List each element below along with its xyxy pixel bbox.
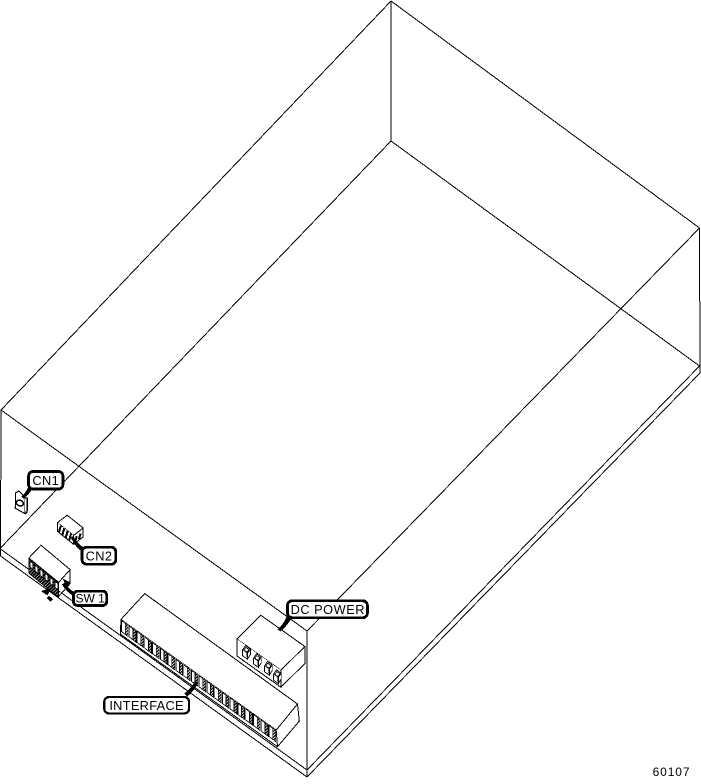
svg-text:INTERFACE: INTERFACE [109, 698, 184, 713]
svg-text:60107: 60107 [653, 765, 691, 779]
svg-text:CN1: CN1 [32, 473, 59, 488]
svg-text:DC POWER: DC POWER [291, 602, 365, 617]
svg-text:CN2: CN2 [86, 548, 113, 563]
svg-text:SW 1: SW 1 [76, 592, 106, 606]
